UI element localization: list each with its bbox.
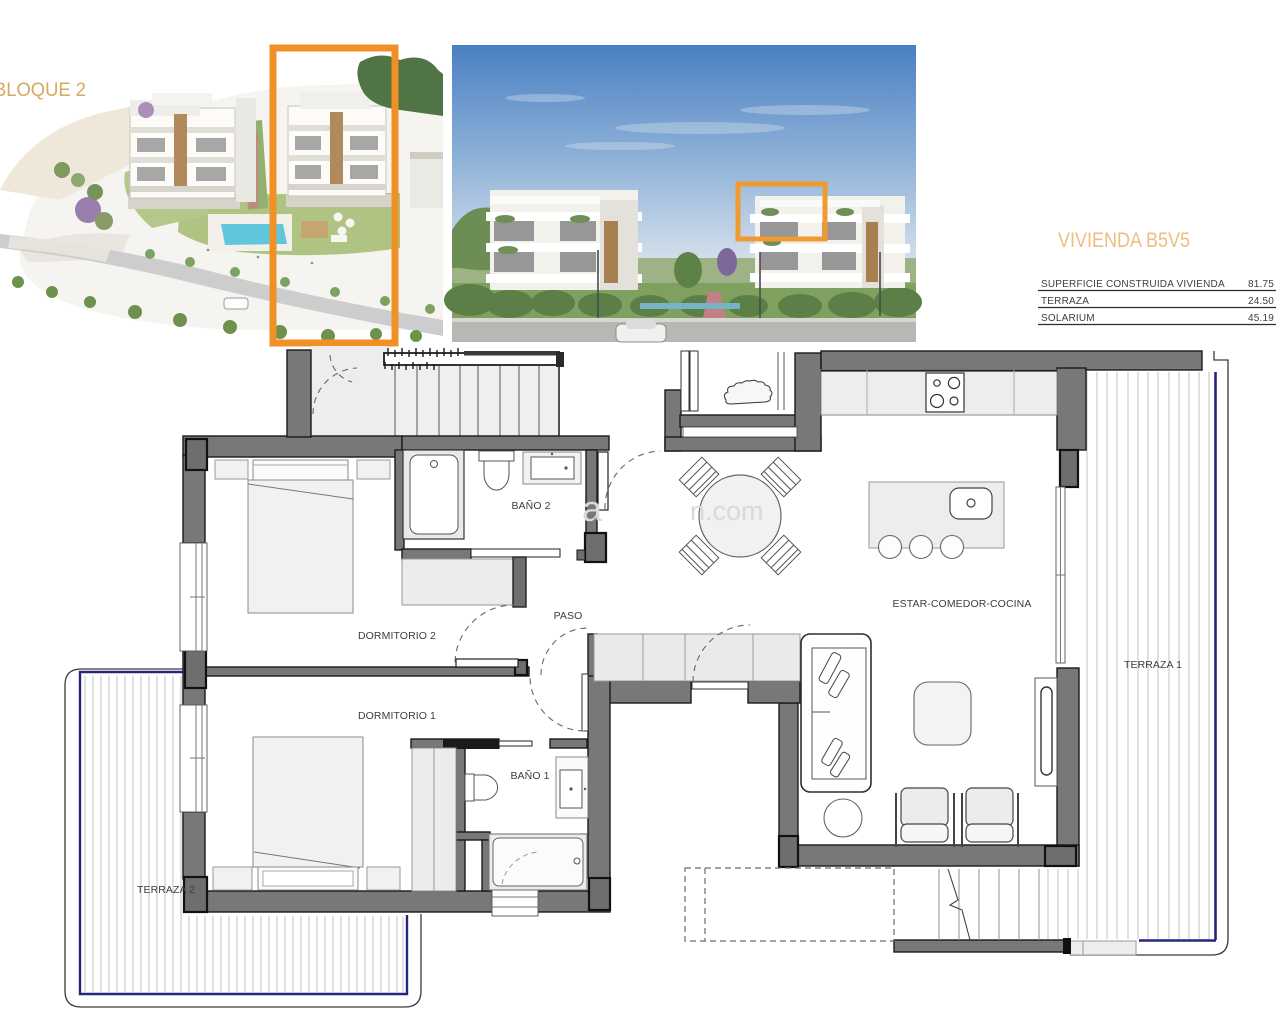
svg-text:DORMITORIO 1: DORMITORIO 1	[358, 710, 436, 722]
svg-text:45.19: 45.19	[1248, 313, 1274, 324]
svg-text:BAÑO 1: BAÑO 1	[510, 769, 549, 782]
svg-text:BLOQUE 2: BLOQUE 2	[0, 80, 86, 101]
svg-text:81.75: 81.75	[1248, 279, 1274, 290]
svg-text:TERRAZA 1: TERRAZA 1	[1124, 659, 1182, 671]
svg-text:PASO: PASO	[554, 610, 583, 622]
svg-text:a: a	[582, 488, 603, 529]
svg-text:ESTAR-COMEDOR-COCINA: ESTAR-COMEDOR-COCINA	[893, 598, 1032, 610]
svg-text:SUPERFICIE CONSTRUIDA VIVIENDA: SUPERFICIE CONSTRUIDA VIVIENDA	[1041, 279, 1225, 290]
svg-text:TERRAZA 2: TERRAZA 2	[137, 884, 195, 896]
svg-text:SOLARIUM: SOLARIUM	[1041, 313, 1095, 324]
svg-text:n.com: n.com	[690, 496, 764, 526]
svg-text:TERRAZA: TERRAZA	[1041, 296, 1089, 307]
svg-text:BAÑO 2: BAÑO 2	[511, 499, 550, 512]
svg-text:24.50: 24.50	[1248, 296, 1274, 307]
svg-text:DORMITORIO 2: DORMITORIO 2	[358, 630, 436, 642]
svg-text:VIVIENDA B5V5: VIVIENDA B5V5	[1058, 229, 1190, 252]
